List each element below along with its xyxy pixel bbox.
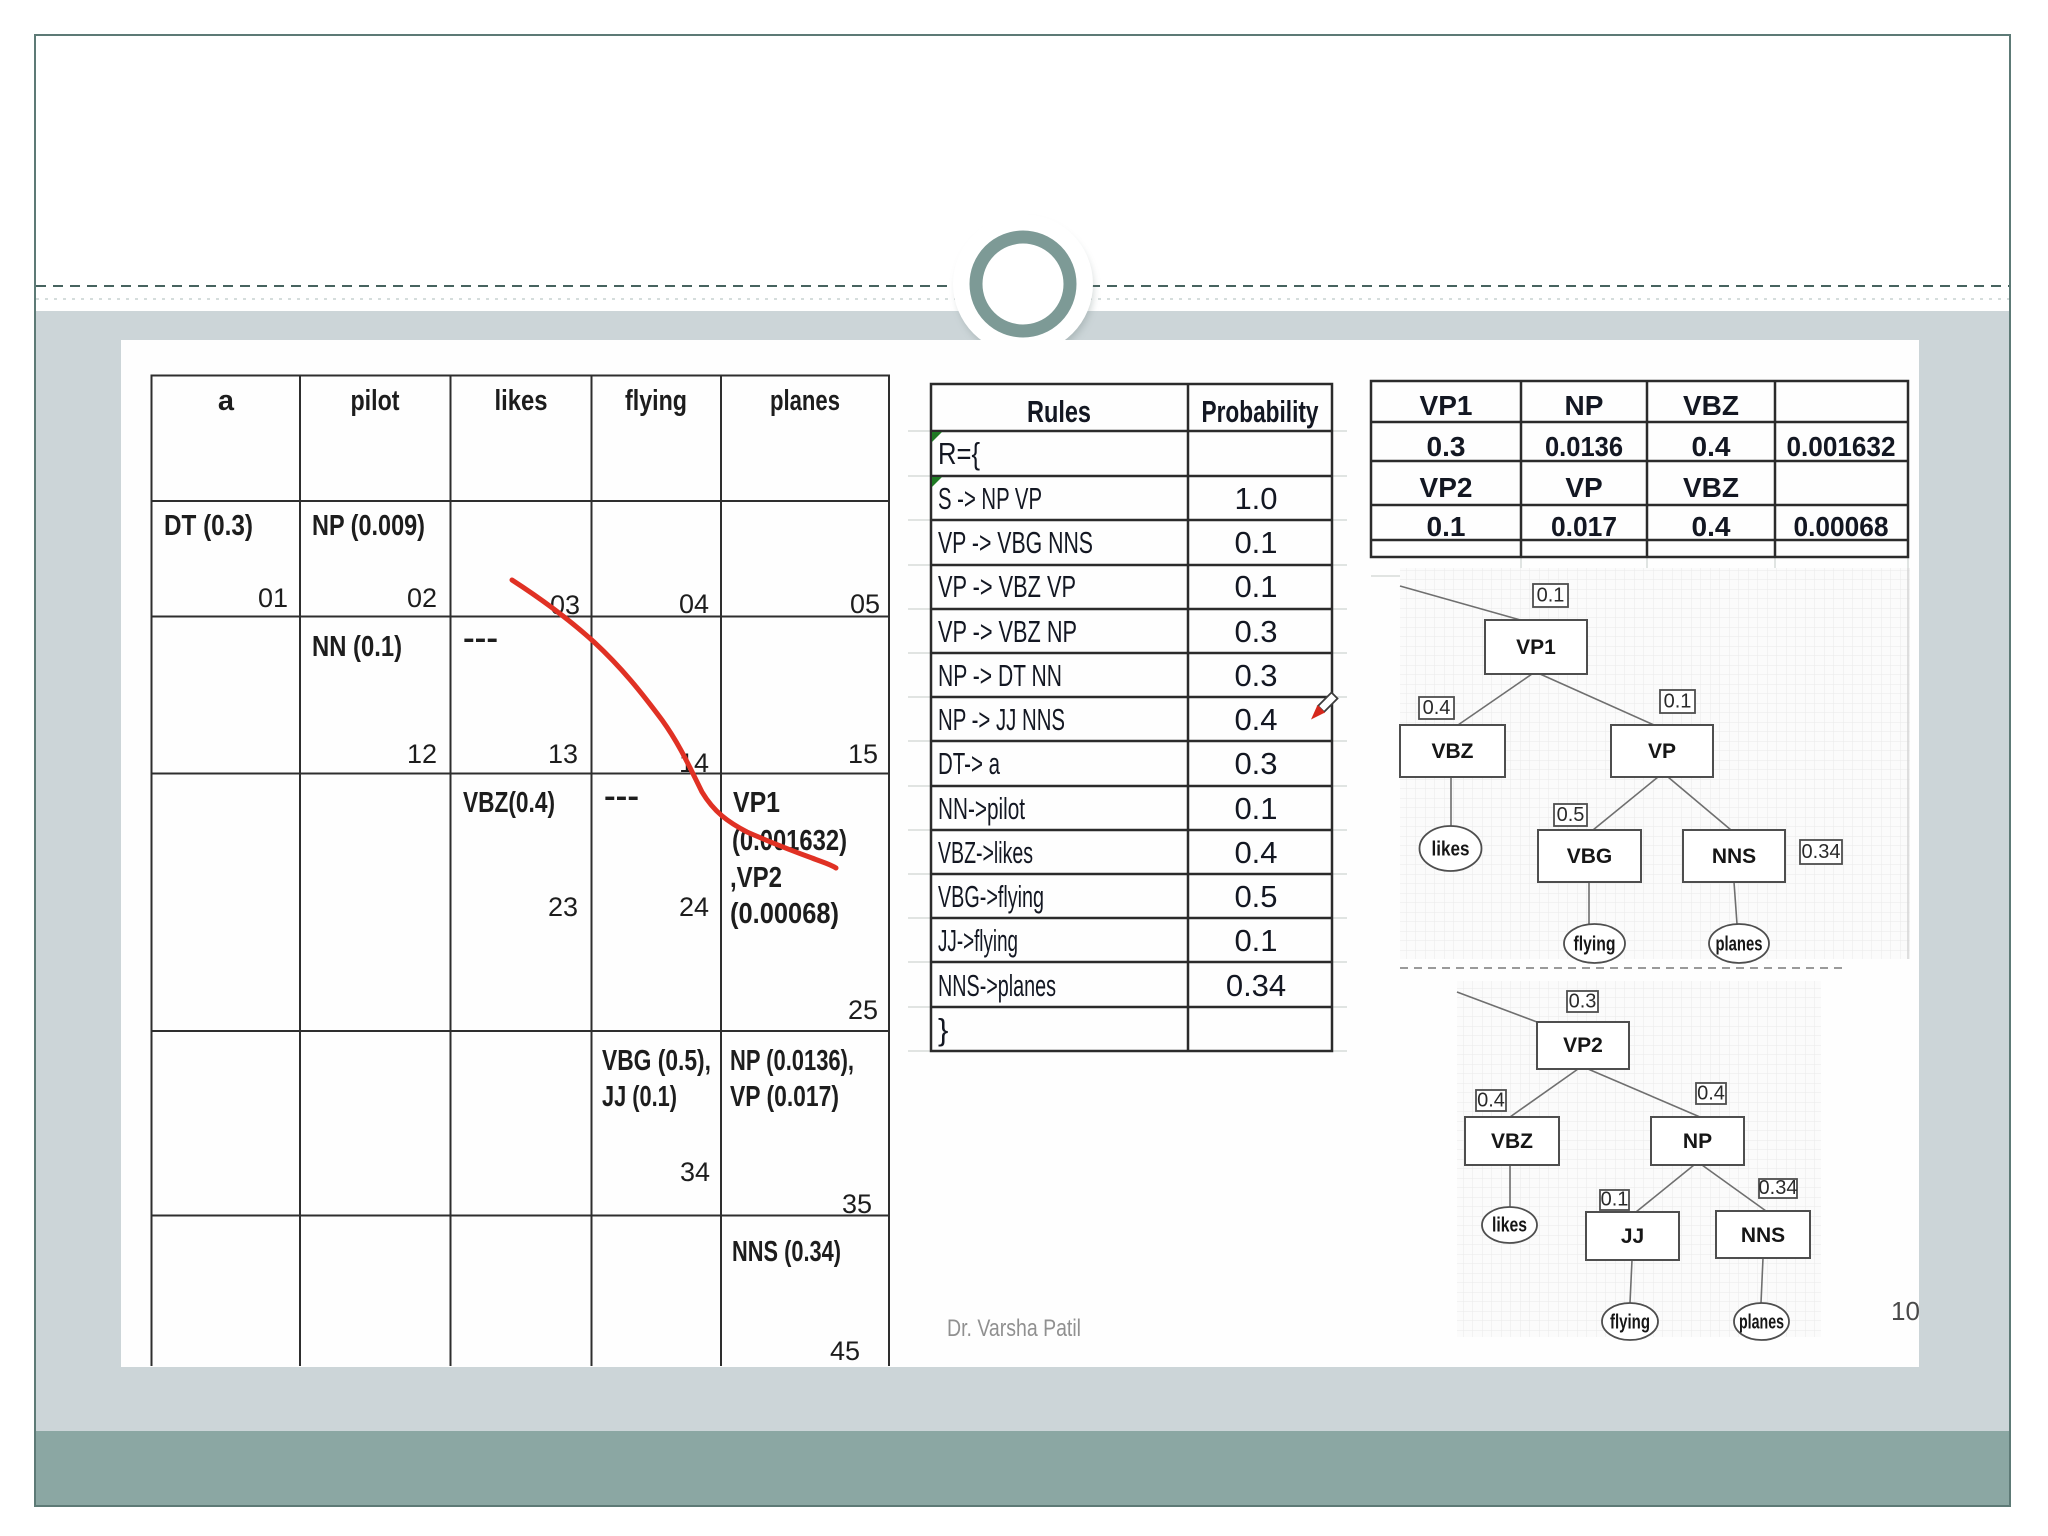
svg-text:VP1: VP1 (1516, 636, 1556, 659)
svg-text:a: a (218, 385, 235, 417)
svg-text:0.34: 0.34 (1802, 841, 1841, 863)
svg-text:NP -> JJ NNS: NP -> JJ NNS (938, 702, 1065, 737)
svg-text:0.1: 0.1 (1234, 525, 1277, 560)
svg-text:0.5: 0.5 (1557, 804, 1585, 826)
svg-text:0.3: 0.3 (1569, 991, 1597, 1013)
svg-text:0.4: 0.4 (1234, 702, 1277, 737)
svg-text:NNS: NNS (1712, 845, 1756, 868)
svg-text:NP: NP (1565, 390, 1604, 421)
svg-text:1.0: 1.0 (1234, 481, 1277, 516)
svg-text:Rules: Rules (1027, 394, 1091, 429)
svg-text:34: 34 (680, 1157, 710, 1187)
svg-text:VP2: VP2 (1563, 1034, 1603, 1057)
svg-text:VP1: VP1 (1420, 390, 1473, 421)
svg-text:VBZ: VBZ (1491, 1130, 1533, 1153)
svg-text:0.1: 0.1 (1601, 1189, 1629, 1211)
svg-text:0.5: 0.5 (1234, 879, 1277, 914)
svg-text:flying: flying (625, 385, 687, 417)
svg-text:04: 04 (679, 589, 709, 619)
svg-text:13: 13 (548, 739, 578, 769)
svg-text:DT-> a: DT-> a (938, 746, 1000, 781)
svg-text:VP2: VP2 (1420, 472, 1473, 503)
svg-text:JJ: JJ (1621, 1225, 1644, 1248)
svg-text:0.1: 0.1 (1537, 585, 1565, 607)
svg-text:planes: planes (770, 385, 840, 417)
svg-text:Dr. Varsha Patil: Dr. Varsha Patil (947, 1315, 1081, 1342)
svg-text:NP: NP (1683, 1130, 1712, 1153)
svg-text:NP (0.009): NP (0.009) (312, 510, 425, 542)
svg-text:VP -> VBZ VP: VP -> VBZ VP (938, 569, 1076, 604)
svg-text:VBG (0.5),: VBG (0.5), (602, 1045, 711, 1077)
svg-text:VP -> VBZ NP: VP -> VBZ NP (938, 614, 1077, 649)
svg-text:---: --- (604, 781, 639, 813)
svg-text:VBZ: VBZ (1432, 740, 1474, 763)
svg-text:0.1: 0.1 (1234, 791, 1277, 826)
svg-text:10: 10 (1891, 1296, 1920, 1326)
svg-text:05: 05 (850, 589, 880, 619)
svg-text:VP: VP (1565, 472, 1602, 503)
svg-text:0.1: 0.1 (1234, 569, 1277, 604)
svg-text:JJ (0.1): JJ (0.1) (602, 1081, 677, 1113)
svg-text:0.1: 0.1 (1427, 511, 1466, 542)
svg-text:VBZ(0.4): VBZ(0.4) (463, 787, 555, 819)
svg-text:0.017: 0.017 (1551, 511, 1617, 542)
svg-text:NN->pilot: NN->pilot (938, 791, 1025, 826)
svg-text:planes: planes (1739, 1312, 1784, 1334)
svg-text:flying: flying (1610, 1312, 1650, 1334)
svg-text:pilot: pilot (351, 385, 400, 417)
svg-text:15: 15 (848, 739, 878, 769)
svg-text:likes: likes (1432, 839, 1470, 861)
svg-text:0.4: 0.4 (1423, 697, 1451, 719)
svg-text:24: 24 (679, 892, 709, 922)
svg-text:0.3: 0.3 (1427, 431, 1466, 462)
svg-text:likes: likes (1492, 1215, 1527, 1237)
svg-text:NP (0.0136),: NP (0.0136), (730, 1045, 854, 1077)
svg-text:VBG: VBG (1567, 845, 1613, 868)
svg-text:0.00068: 0.00068 (1794, 511, 1889, 542)
svg-text:R={: R={ (938, 436, 980, 471)
svg-text:(0.00068): (0.00068) (730, 898, 839, 930)
svg-text:Probability: Probability (1202, 394, 1320, 429)
svg-text:01: 01 (258, 583, 288, 613)
svg-text:NNS: NNS (1741, 1224, 1785, 1247)
svg-text:JJ->flying: JJ->flying (938, 923, 1018, 958)
svg-text:0.0136: 0.0136 (1545, 431, 1623, 462)
svg-text:0.3: 0.3 (1234, 746, 1277, 781)
svg-text:---: --- (463, 623, 498, 655)
svg-text:DT (0.3): DT (0.3) (164, 510, 253, 542)
svg-text:likes: likes (495, 385, 548, 417)
svg-text:NNS->planes: NNS->planes (938, 968, 1056, 1003)
svg-text:0.4: 0.4 (1692, 511, 1731, 542)
svg-text:35: 35 (842, 1189, 872, 1219)
svg-text:0.3: 0.3 (1234, 614, 1277, 649)
svg-text:NN (0.1): NN (0.1) (312, 631, 402, 663)
svg-text:planes: planes (1716, 934, 1763, 956)
svg-text:0.1: 0.1 (1664, 691, 1692, 713)
svg-text:0.4: 0.4 (1697, 1083, 1725, 1105)
svg-text:VBG->flying: VBG->flying (938, 879, 1044, 914)
svg-text:,VP2: ,VP2 (730, 862, 782, 894)
svg-text:VBZ: VBZ (1683, 390, 1739, 421)
svg-text:25: 25 (848, 995, 878, 1025)
svg-text:flying: flying (1574, 934, 1616, 956)
svg-text:VBZ->likes: VBZ->likes (938, 835, 1033, 870)
svg-text:0.001632: 0.001632 (1787, 431, 1896, 462)
svg-text:0.4: 0.4 (1234, 835, 1277, 870)
svg-text:0.4: 0.4 (1477, 1090, 1505, 1112)
svg-text:0.3: 0.3 (1234, 658, 1277, 693)
svg-text:12: 12 (407, 739, 437, 769)
svg-text:0.1: 0.1 (1234, 923, 1277, 958)
svg-text:0.4: 0.4 (1692, 431, 1731, 462)
svg-text:VP -> VBG NNS: VP -> VBG NNS (938, 525, 1093, 560)
svg-text:0.34: 0.34 (1759, 1177, 1798, 1199)
svg-text:NP -> DT NN: NP -> DT NN (938, 658, 1062, 693)
svg-text:S -> NP VP: S -> NP VP (938, 481, 1042, 516)
svg-text:23: 23 (548, 892, 578, 922)
svg-text:VP: VP (1648, 740, 1676, 763)
svg-text:}: } (938, 1012, 948, 1047)
svg-text:VP (0.017): VP (0.017) (730, 1081, 839, 1113)
svg-text:NNS (0.34): NNS (0.34) (732, 1236, 841, 1268)
svg-text:VBZ: VBZ (1683, 472, 1739, 503)
svg-text:02: 02 (407, 583, 437, 613)
svg-text:0.34: 0.34 (1226, 968, 1286, 1003)
svg-text:VP1: VP1 (733, 787, 780, 819)
svg-text:45: 45 (830, 1336, 860, 1366)
